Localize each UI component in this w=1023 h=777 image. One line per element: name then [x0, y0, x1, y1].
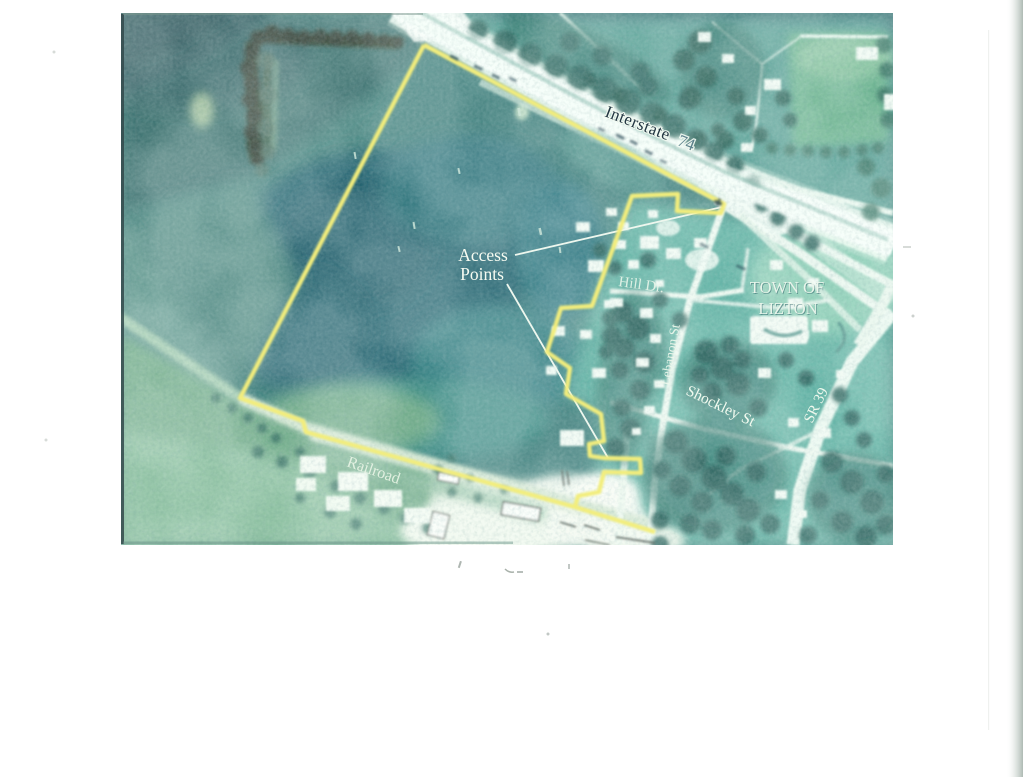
svg-text:TOWN OF: TOWN OF — [750, 278, 824, 297]
svg-text:Access: Access — [458, 245, 508, 265]
svg-text:Points: Points — [460, 264, 504, 284]
svg-text:LIZTON: LIZTON — [758, 299, 817, 318]
